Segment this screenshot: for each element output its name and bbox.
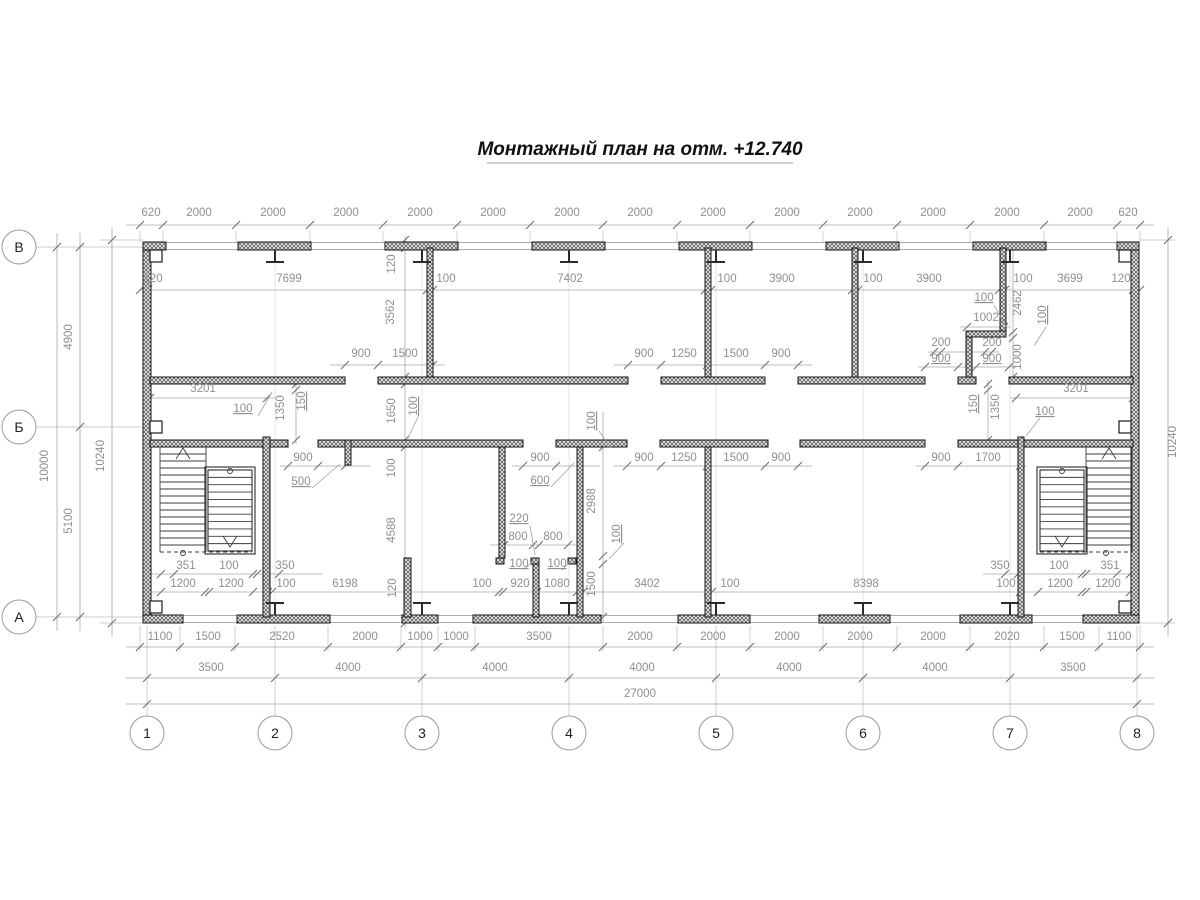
dim-label: 350 bbox=[990, 560, 1009, 572]
dim-label: 351 bbox=[176, 560, 195, 572]
grid-bubble-col-label: 6 bbox=[859, 725, 867, 741]
wall-panel bbox=[556, 440, 627, 447]
dim-label: 2000 bbox=[1067, 207, 1093, 219]
wall-panel bbox=[577, 447, 583, 617]
dim-label: 7402 bbox=[557, 273, 583, 285]
column-mark bbox=[1119, 250, 1131, 262]
column-mark bbox=[150, 421, 162, 433]
wall-panel bbox=[533, 564, 539, 617]
grid-bubble-col-label: 1 bbox=[143, 725, 151, 741]
dim-label: 2000 bbox=[920, 631, 946, 643]
dim-label: 1200 bbox=[1047, 578, 1073, 590]
dim-label: 2520 bbox=[269, 631, 295, 643]
dim-label: 1700 bbox=[975, 452, 1001, 464]
dim-label: 1500 bbox=[1059, 631, 1085, 643]
dim-label: 2000 bbox=[774, 631, 800, 643]
grid-bubble-row-label: В bbox=[14, 239, 23, 255]
dim-label: 220 bbox=[509, 513, 528, 525]
wall-panel bbox=[531, 558, 539, 564]
dim-label: 100 bbox=[233, 403, 252, 415]
wall-panel bbox=[150, 377, 345, 384]
dim-label: 100 bbox=[1035, 406, 1054, 418]
dim-label: 2462 bbox=[1012, 290, 1024, 316]
dim-label: 1200 bbox=[1095, 578, 1121, 590]
wall-panel bbox=[826, 242, 899, 250]
column-mark bbox=[1119, 601, 1131, 613]
dim-label: 2000 bbox=[407, 207, 433, 219]
wall-panel bbox=[532, 242, 605, 250]
dim-label: 200 bbox=[931, 337, 950, 349]
wall-panel bbox=[263, 437, 270, 617]
dim-label: 100 bbox=[472, 578, 491, 590]
dim-label: 600 bbox=[530, 475, 549, 487]
dim-label: 900 bbox=[771, 348, 790, 360]
dim-label: 1250 bbox=[671, 348, 697, 360]
dim-label: 1500 bbox=[586, 571, 598, 597]
grid-bubble-col-label: 8 bbox=[1133, 725, 1141, 741]
dim-label: 1500 bbox=[392, 348, 418, 360]
dim-label: 10000 bbox=[39, 450, 51, 482]
dim-label: 2000 bbox=[920, 207, 946, 219]
dim-label: 920 bbox=[510, 578, 529, 590]
wall-panel bbox=[427, 248, 433, 377]
wall-panel bbox=[800, 440, 925, 447]
dim-label: 1200 bbox=[218, 578, 244, 590]
dim-label: 6198 bbox=[332, 578, 358, 590]
dim-label: 100 bbox=[863, 273, 882, 285]
dim-label: 3201 bbox=[1063, 383, 1089, 395]
dim-label: 900 bbox=[771, 452, 790, 464]
dim-label: 5100 bbox=[63, 508, 75, 534]
wall-panel bbox=[819, 615, 890, 623]
wall-panel bbox=[496, 558, 504, 564]
wall-panel bbox=[385, 242, 458, 250]
wall-panel bbox=[705, 447, 711, 617]
dim-label: 4000 bbox=[335, 662, 361, 674]
dim-label: 900 bbox=[982, 353, 1001, 365]
dim-label: 27000 bbox=[624, 688, 656, 700]
dim-label: 100 bbox=[547, 558, 566, 570]
wall-panel bbox=[660, 440, 768, 447]
dim-label: 620 bbox=[141, 207, 160, 219]
dim-label: 100 bbox=[276, 578, 295, 590]
wall-panel bbox=[958, 440, 1133, 447]
dim-label: 620 bbox=[1118, 207, 1137, 219]
dim-label: 150 bbox=[968, 394, 980, 413]
dim-label: 1350 bbox=[275, 395, 287, 421]
dim-label: 10240 bbox=[95, 440, 107, 472]
dim-label: 1100 bbox=[1107, 631, 1132, 643]
dim-label: 351 bbox=[1100, 560, 1119, 572]
dim-label: 10240 bbox=[1167, 426, 1179, 458]
dim-label: 2000 bbox=[186, 207, 212, 219]
dim-label: 1002 bbox=[973, 312, 999, 324]
wall-panel bbox=[798, 377, 925, 384]
wall-panel bbox=[1117, 242, 1139, 250]
dim-label: 4588 bbox=[386, 517, 398, 543]
wall-panel bbox=[1131, 242, 1139, 623]
dim-label: 4000 bbox=[629, 662, 655, 674]
dim-label: 2000 bbox=[352, 631, 378, 643]
wall-panel bbox=[973, 242, 1046, 250]
dim-label: 4900 bbox=[63, 324, 75, 350]
dim-label: 1350 bbox=[990, 394, 1002, 420]
dim-label: 1100 bbox=[148, 631, 173, 643]
column-mark bbox=[1119, 421, 1131, 433]
grid-bubble-col-label: 2 bbox=[271, 725, 279, 741]
dim-label: 3500 bbox=[198, 662, 224, 674]
dim-label: 120 bbox=[1111, 273, 1130, 285]
dim-label: 1200 bbox=[170, 578, 196, 590]
dim-label: 100 bbox=[996, 578, 1015, 590]
dim-label: 100 bbox=[586, 411, 598, 430]
dim-label: 1500 bbox=[723, 452, 749, 464]
dim-label: 2000 bbox=[700, 631, 726, 643]
dim-label: 100 bbox=[1037, 305, 1049, 324]
dim-label: 4000 bbox=[482, 662, 508, 674]
dim-label: 2000 bbox=[554, 207, 580, 219]
dim-label: 1500 bbox=[723, 348, 749, 360]
grid-bubble-col-label: 3 bbox=[418, 725, 426, 741]
wall-panel bbox=[378, 377, 628, 384]
dim-label: 900 bbox=[931, 452, 950, 464]
dim-label: 100 bbox=[974, 292, 993, 304]
grid-bubble-col-label: 7 bbox=[1006, 725, 1014, 741]
wall-panel bbox=[1018, 437, 1024, 617]
wall-panel bbox=[966, 337, 972, 377]
dim-label: 2000 bbox=[627, 631, 653, 643]
dim-label: 900 bbox=[634, 452, 653, 464]
wall-panel bbox=[678, 615, 750, 623]
dim-label: 1000 bbox=[443, 631, 469, 643]
dim-label: 1080 bbox=[544, 578, 570, 590]
drawing-sheet: 6202000200020002000200020002000200020002… bbox=[0, 0, 1200, 900]
dim-label: 3201 bbox=[190, 383, 216, 395]
column-mark bbox=[150, 601, 162, 613]
dim-label: 1000 bbox=[1012, 344, 1024, 370]
wall-panel bbox=[679, 242, 752, 250]
grid-bubble-col-label: 4 bbox=[565, 725, 573, 741]
dim-label: 2000 bbox=[700, 207, 726, 219]
dim-label: 2000 bbox=[847, 207, 873, 219]
dim-label: 120 bbox=[143, 273, 162, 285]
dim-label: 2020 bbox=[994, 631, 1020, 643]
dim-label: 8398 bbox=[853, 578, 879, 590]
dim-label: 100 bbox=[720, 578, 739, 590]
dim-label: 800 bbox=[508, 531, 527, 543]
dim-label: 100 bbox=[717, 273, 736, 285]
dim-label: 800 bbox=[543, 531, 562, 543]
dim-label: 150 bbox=[296, 391, 308, 410]
wall-panel bbox=[238, 242, 311, 250]
dim-label: 1500 bbox=[195, 631, 221, 643]
dim-label: 3900 bbox=[769, 273, 795, 285]
dim-label: 3500 bbox=[1060, 662, 1086, 674]
dim-label: 200 bbox=[982, 337, 1001, 349]
dim-label: 100 bbox=[611, 524, 623, 543]
wall-panel bbox=[404, 558, 411, 617]
dim-label: 100 bbox=[219, 560, 238, 572]
dim-label: 100 bbox=[1013, 273, 1032, 285]
dim-label: 2000 bbox=[994, 207, 1020, 219]
dim-label: 900 bbox=[293, 452, 312, 464]
dim-label: 900 bbox=[530, 452, 549, 464]
dim-label: 2000 bbox=[260, 207, 286, 219]
dim-label: 100 bbox=[436, 273, 455, 285]
dim-label: 3500 bbox=[526, 631, 552, 643]
dim-label: 2000 bbox=[627, 207, 653, 219]
dim-label: 900 bbox=[351, 348, 370, 360]
dim-label: 100 bbox=[386, 458, 398, 477]
dim-label: 100 bbox=[1049, 560, 1068, 572]
wall-panel bbox=[852, 248, 858, 377]
wall-panel bbox=[345, 440, 351, 465]
dim-label: 120 bbox=[386, 254, 398, 273]
dim-label: 3900 bbox=[916, 273, 942, 285]
wall-panel bbox=[705, 248, 711, 377]
dim-label: 2000 bbox=[333, 207, 359, 219]
wall-panel bbox=[499, 447, 505, 558]
grid-bubble-row-label: Б bbox=[14, 419, 23, 435]
floor-plan-canvas: 6202000200020002000200020002000200020002… bbox=[0, 0, 1200, 900]
wall-panel bbox=[661, 377, 765, 384]
wall-panel bbox=[143, 615, 183, 623]
wall-panel bbox=[1083, 615, 1139, 623]
dim-label: 1250 bbox=[671, 452, 697, 464]
dim-label: 2988 bbox=[586, 488, 598, 514]
dim-label: 900 bbox=[931, 353, 950, 365]
dim-label: 7699 bbox=[276, 273, 302, 285]
dim-label: 4000 bbox=[922, 662, 948, 674]
column-mark bbox=[150, 250, 162, 262]
dim-label: 1000 bbox=[407, 631, 433, 643]
grid-bubble-row-label: А bbox=[14, 609, 24, 625]
dim-label: 120 bbox=[387, 578, 399, 597]
dim-label: 3562 bbox=[385, 299, 397, 325]
dim-label: 3402 bbox=[634, 578, 660, 590]
dim-label: 900 bbox=[634, 348, 653, 360]
wall-panel bbox=[237, 615, 330, 623]
dim-label: 2000 bbox=[480, 207, 506, 219]
dim-label: 3699 bbox=[1057, 273, 1083, 285]
dim-label: 500 bbox=[291, 476, 310, 488]
dim-label: 1650 bbox=[386, 398, 398, 424]
dim-label: 4000 bbox=[776, 662, 802, 674]
dim-label: 2000 bbox=[774, 207, 800, 219]
grid-bubble-col-label: 5 bbox=[712, 725, 720, 741]
dim-label: 100 bbox=[509, 558, 528, 570]
drawing-title: Монтажный план на отм. +12.740 bbox=[477, 139, 803, 160]
dim-label: 100 bbox=[408, 396, 420, 415]
wall-panel bbox=[958, 377, 976, 384]
dim-label: 350 bbox=[275, 560, 294, 572]
dim-label: 2000 bbox=[847, 631, 873, 643]
wall-panel bbox=[143, 242, 166, 250]
